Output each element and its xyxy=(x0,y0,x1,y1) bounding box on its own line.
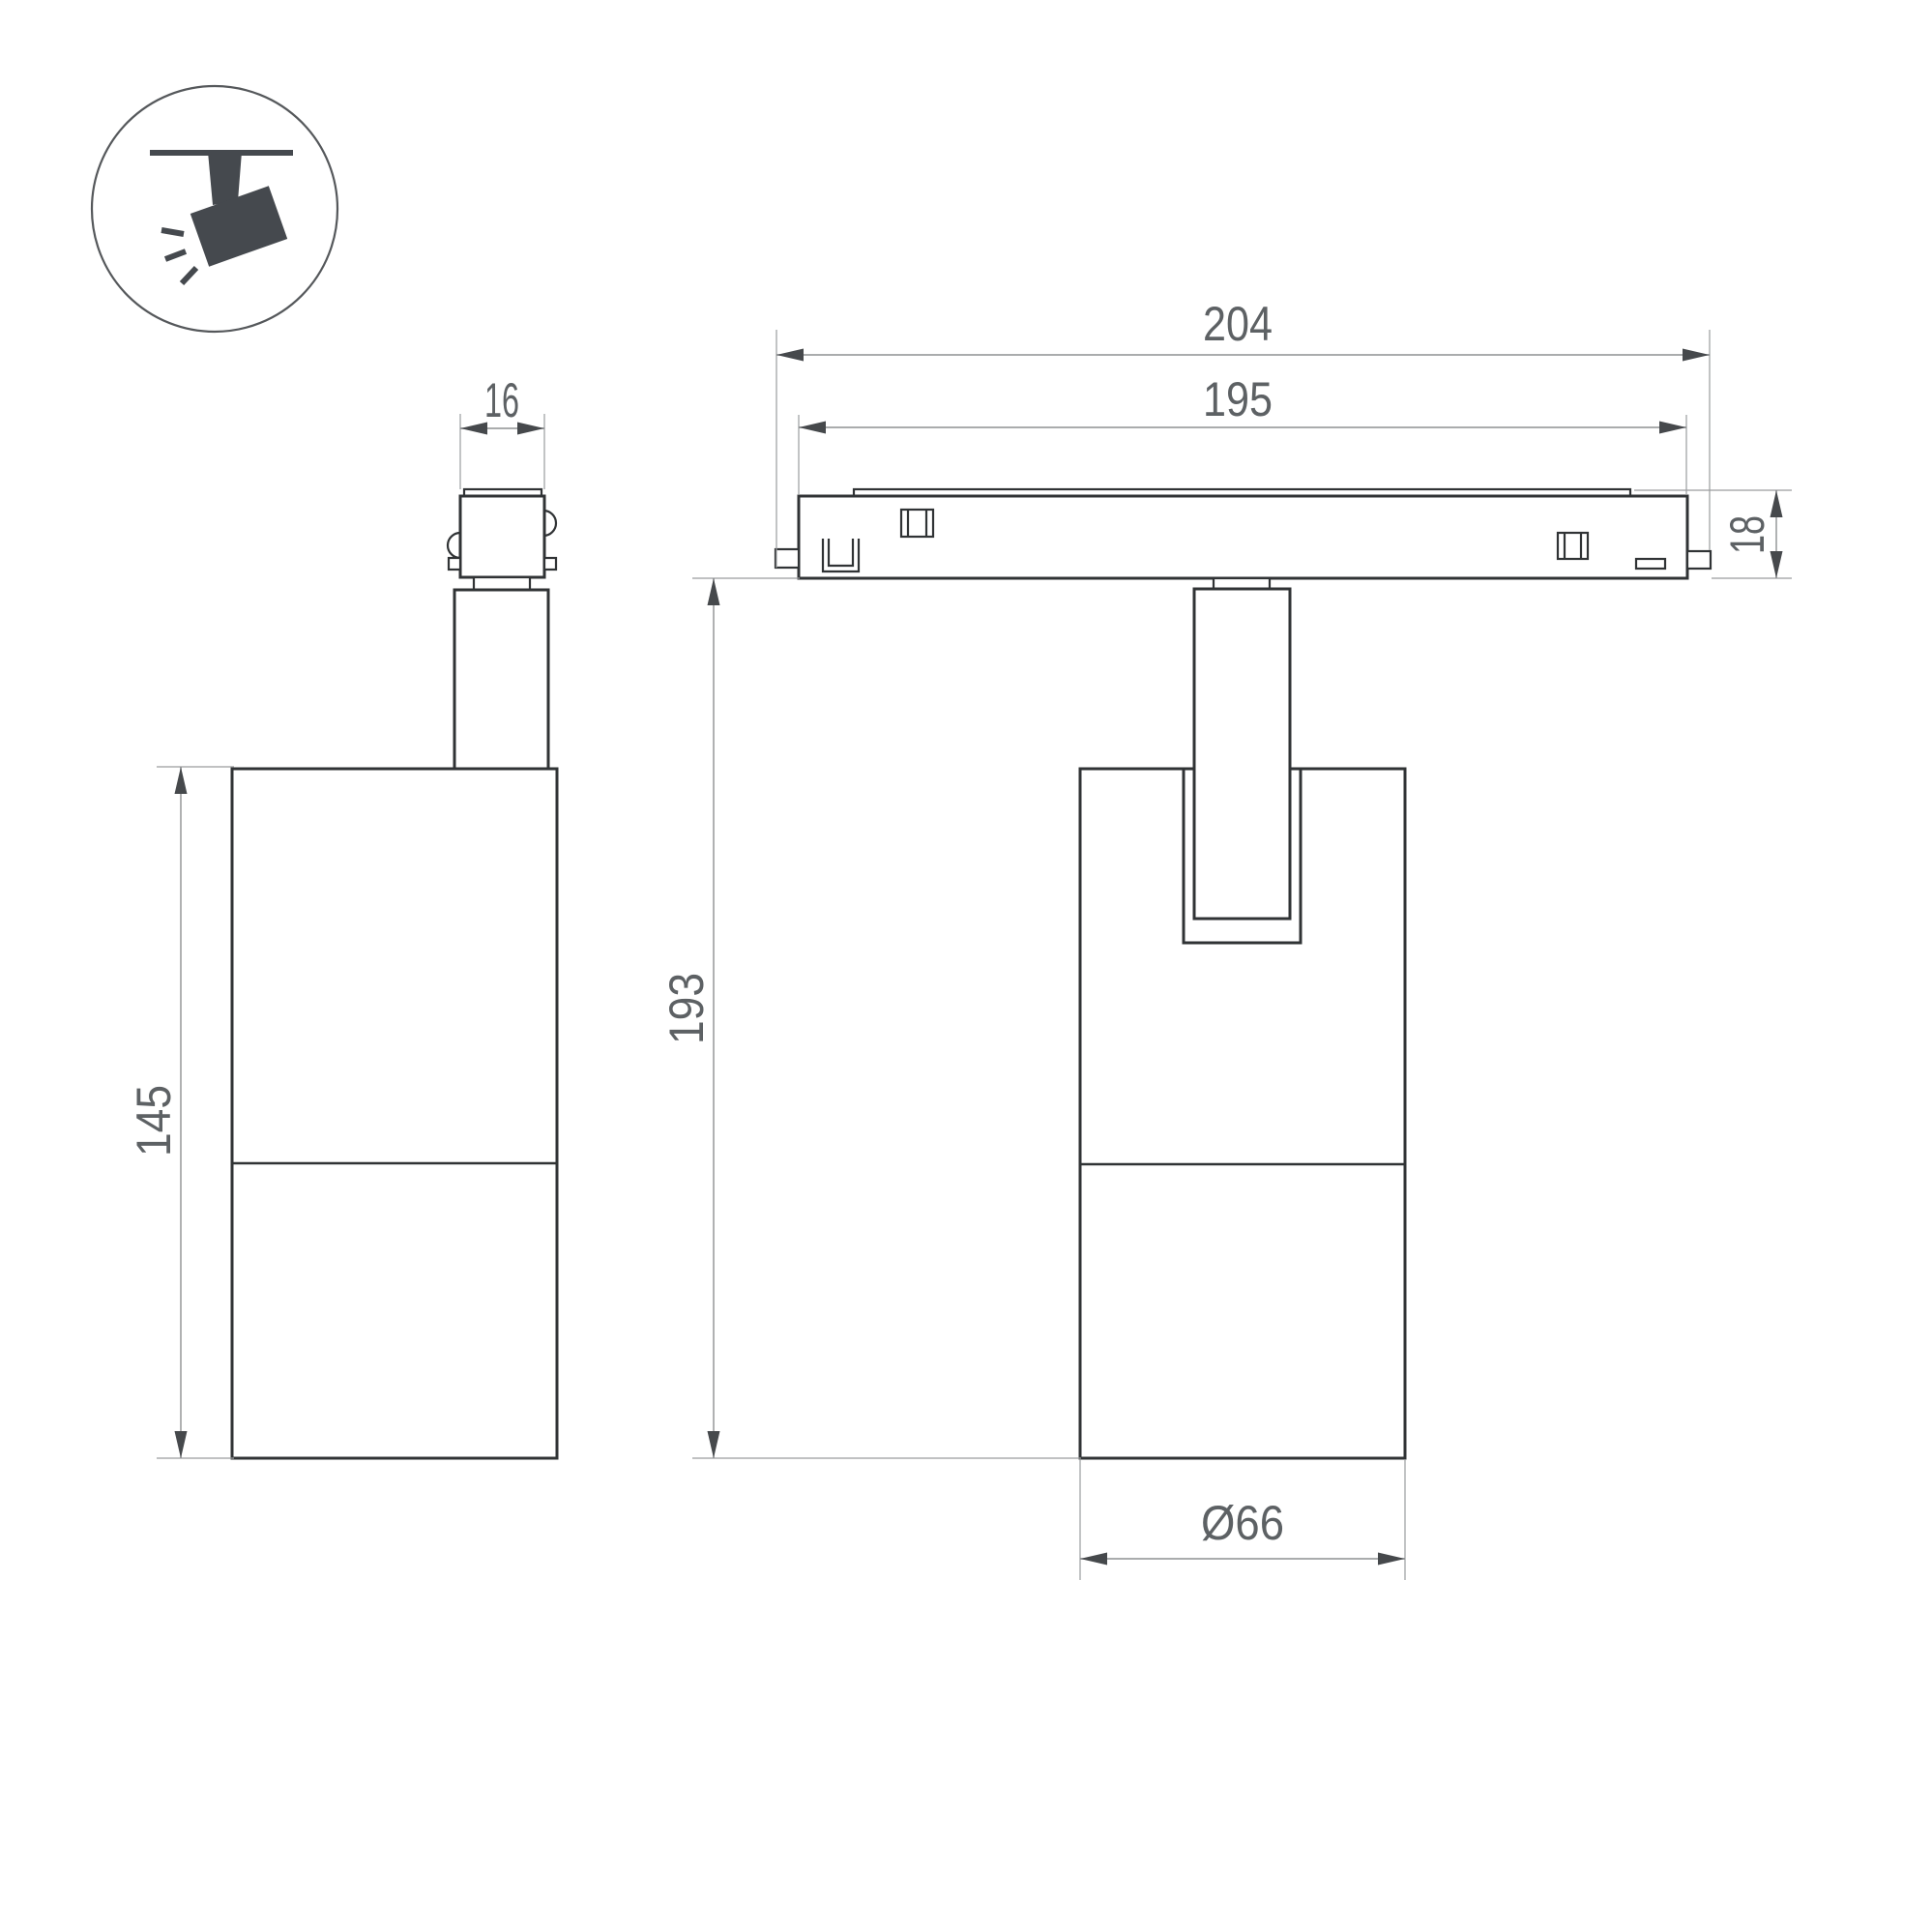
dim-label-drop-height: 193 xyxy=(659,973,714,1044)
track-right-latch xyxy=(1558,533,1588,559)
technical-drawing-canvas: 16 145 204 195 18 193 Ø66 xyxy=(0,0,1932,1932)
adapter-neck xyxy=(474,577,530,590)
track-right-end-tab xyxy=(1687,551,1711,569)
track-left-latch xyxy=(901,510,933,537)
dim-label-track-inner: 195 xyxy=(1203,372,1273,426)
front-view xyxy=(776,489,1711,1458)
adapter-left-bump xyxy=(448,533,460,558)
side-view xyxy=(232,489,557,1458)
lamp-body xyxy=(232,769,557,1458)
dim-label-body-diameter: Ø66 xyxy=(1201,1496,1284,1550)
dim-label-adapter-width: 16 xyxy=(484,373,519,427)
adapter-right-tab xyxy=(544,558,556,570)
stem-connector-nub xyxy=(1214,578,1270,589)
dim-label-body-height: 145 xyxy=(127,1085,181,1156)
dim-label-track-height: 18 xyxy=(1720,515,1774,554)
legend-icon xyxy=(92,86,337,332)
suspension-stem xyxy=(454,590,548,769)
track-adapter xyxy=(460,496,544,577)
suspension-stem-front xyxy=(1194,589,1290,919)
track-left-end-tab xyxy=(776,549,799,568)
mount-stub-icon xyxy=(208,152,242,205)
adapter-left-tab xyxy=(449,558,460,570)
dimension-drawing: 16 145 204 195 18 193 Ø66 xyxy=(0,0,1932,1932)
dim-label-track-overall: 204 xyxy=(1203,297,1273,351)
track-slot-detail xyxy=(1636,559,1665,569)
